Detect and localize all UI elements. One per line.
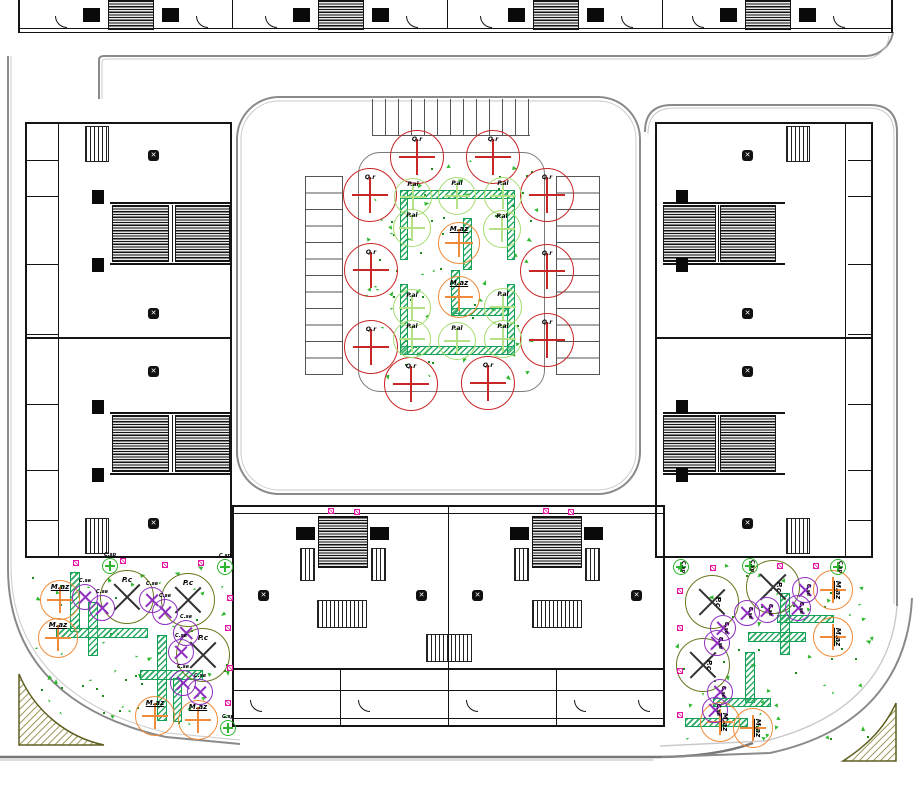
utility-marker xyxy=(328,508,334,514)
site-plan-canvas: ✕✕✕✕✕✕✕✕✕✕✕✕ Q.rQ.rQ.rQ.rQ.rQ.rQ.rQ.rQ.r… xyxy=(0,0,915,799)
utility-marker xyxy=(198,560,204,566)
utility-marker xyxy=(710,565,716,571)
utility-marker xyxy=(677,712,683,718)
utility-marker xyxy=(677,625,683,631)
utility-marker xyxy=(813,563,819,569)
utility-marker xyxy=(568,509,574,515)
utility-marker xyxy=(162,562,168,568)
utility-marker xyxy=(225,625,231,631)
utility-marker xyxy=(777,563,783,569)
utility-markers-layer xyxy=(0,0,915,799)
utility-marker xyxy=(73,560,79,566)
utility-marker xyxy=(677,588,683,594)
utility-marker xyxy=(677,668,683,674)
utility-marker xyxy=(227,595,233,601)
utility-marker xyxy=(225,700,231,706)
utility-marker xyxy=(543,508,549,514)
utility-marker xyxy=(120,558,126,564)
utility-marker xyxy=(227,665,233,671)
utility-marker xyxy=(354,509,360,515)
